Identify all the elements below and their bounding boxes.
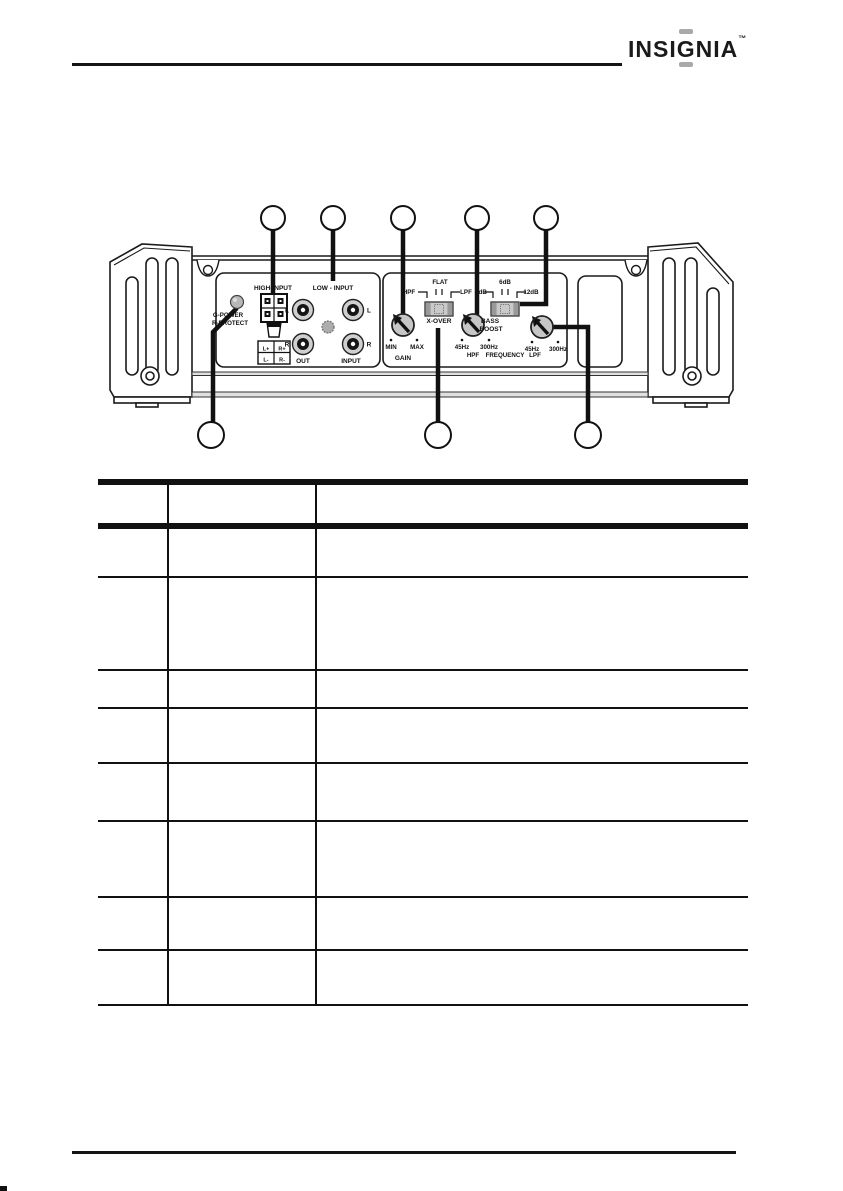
power-protect-led <box>231 296 244 309</box>
table-row <box>98 670 748 708</box>
callout-top-3 <box>391 206 415 230</box>
table-header-cell <box>168 482 316 526</box>
right-heatsink <box>648 243 733 407</box>
callout-top-1 <box>261 206 285 230</box>
high-input-label: HIGH-INPUT <box>254 285 292 292</box>
freq-lpf-label: LPF <box>529 352 541 359</box>
boost-12db-label: 12dB <box>523 289 539 296</box>
table-cell <box>316 950 748 1005</box>
rca-r-right: R <box>367 342 372 349</box>
rca-jack-out-left <box>293 300 314 321</box>
callout-bottom-2 <box>425 422 451 448</box>
led-label-power: G-POWER <box>213 312 244 319</box>
boost-0db-label: 0dB <box>475 289 487 296</box>
rca-jack-in-left <box>343 300 364 321</box>
frequency-label: FREQUENCY <box>486 352 526 359</box>
table-cell <box>168 670 316 708</box>
table-cell <box>98 897 168 950</box>
xover-hpf-label: HPF <box>403 289 416 296</box>
gain-min-label: MIN <box>385 344 397 351</box>
chassis-bottom-bands <box>192 372 648 397</box>
rca-out-label: OUT <box>296 358 310 365</box>
trademark-symbol: ™ <box>738 34 746 43</box>
hpf-45hz-label: 45Hz <box>455 344 469 351</box>
lpf-300hz-label: 300Hz <box>549 346 567 353</box>
table-row <box>98 821 748 897</box>
table-cell <box>98 526 168 577</box>
table-cell <box>168 763 316 821</box>
table-cell <box>98 577 168 670</box>
mounting-notch-left <box>197 260 219 276</box>
terminal-l-minus: L- <box>263 358 268 364</box>
left-heatsink <box>110 244 192 407</box>
callout-top-4 <box>465 206 489 230</box>
table-cell <box>316 821 748 897</box>
mounting-notch-right <box>625 260 647 276</box>
xover-lpf-label: LPF <box>460 289 472 296</box>
xover-label: X-OVER <box>427 318 452 325</box>
table-cell <box>98 950 168 1005</box>
table-cell <box>98 708 168 763</box>
amplifier-rear-panel-diagram: G-POWER R-PROTECT HIGH-INPUT L+ R+ L- R-… <box>100 190 743 470</box>
parts-table <box>98 479 748 1006</box>
hpf-300hz-label: 300Hz <box>480 344 498 351</box>
footer-rule <box>72 1151 736 1154</box>
rca-l-right: L <box>367 308 371 315</box>
table-row <box>98 708 748 763</box>
table-row <box>98 950 748 1005</box>
callout-bottom-1 <box>198 422 224 448</box>
table-cell <box>168 708 316 763</box>
boost-6db-label: 6dB <box>499 279 511 286</box>
table-cell <box>168 897 316 950</box>
lpf-frequency-knob <box>531 316 553 338</box>
logo-text-post: NIA <box>696 36 739 62</box>
table-cell <box>316 708 748 763</box>
logo-text-pre: INSI <box>628 36 677 62</box>
gain-max-label: MAX <box>410 344 425 351</box>
rca-jack-out-right <box>293 334 314 355</box>
table-cell <box>316 577 748 670</box>
rca-r-left: R <box>285 342 290 349</box>
table-cell <box>98 670 168 708</box>
table-cell <box>168 950 316 1005</box>
callout-top-2 <box>321 206 345 230</box>
table-header-cell <box>98 482 168 526</box>
table-row <box>98 577 748 670</box>
chassis-top-edge <box>192 243 700 260</box>
table-header-cell <box>316 482 748 526</box>
logo-letter-g: G <box>677 36 696 63</box>
header-rule <box>72 63 622 66</box>
table-row <box>98 763 748 821</box>
table-cell <box>98 821 168 897</box>
led-highlight <box>233 298 237 302</box>
xover-flat-label: FLAT <box>432 279 448 286</box>
table-cell <box>316 897 748 950</box>
rca-input-label: INPUT <box>341 358 361 365</box>
table-cell <box>316 670 748 708</box>
table-cell <box>168 821 316 897</box>
table-cell <box>168 526 316 577</box>
table-cell <box>168 577 316 670</box>
callout-bottom-3 <box>575 422 601 448</box>
table-row <box>98 526 748 577</box>
terminal-l-plus: L+ <box>263 347 270 353</box>
knurled-screw <box>322 321 334 333</box>
table-cell <box>316 763 748 821</box>
table-cell <box>98 763 168 821</box>
gain-knob <box>392 314 414 336</box>
terminal-r-minus: R- <box>279 358 285 364</box>
print-corner-mark <box>0 1186 7 1191</box>
callout-top-5 <box>534 206 558 230</box>
blank-panel <box>578 276 622 367</box>
gain-label: GAIN <box>395 355 412 362</box>
bass-label: BASS <box>481 318 500 325</box>
table-row <box>98 897 748 950</box>
rca-jack-in-right <box>343 334 364 355</box>
table-header-row <box>98 482 748 526</box>
rca-l-left: L <box>285 308 289 315</box>
boost-label: BOOST <box>479 326 502 333</box>
manual-page: INSIGNIA™ <box>0 0 843 1191</box>
freq-hpf-label: HPF <box>467 352 480 359</box>
insignia-logo: INSIGNIA™ <box>628 36 746 63</box>
table-cell <box>316 526 748 577</box>
led-label-protect: R-PROTECT <box>212 320 248 327</box>
low-input-label: LOW - INPUT <box>313 285 353 292</box>
